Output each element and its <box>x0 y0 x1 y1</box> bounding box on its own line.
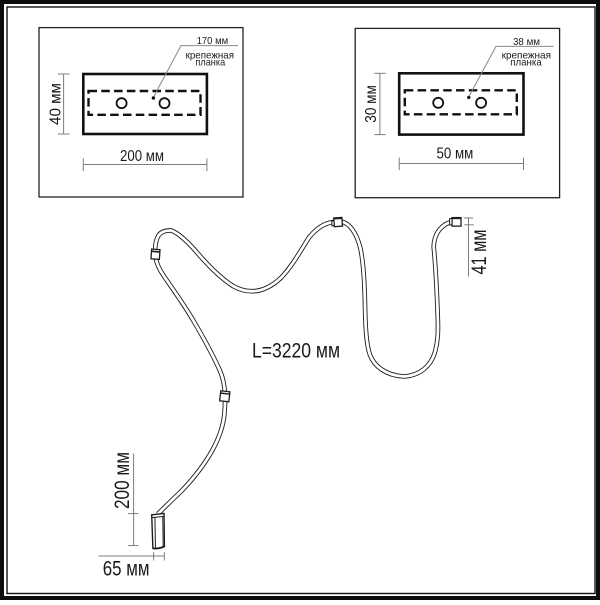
svg-text:50 мм: 50 мм <box>437 146 474 163</box>
svg-text:планка: планка <box>510 57 542 69</box>
svg-text:40 мм: 40 мм <box>47 83 64 125</box>
svg-text:30 мм: 30 мм <box>363 85 380 123</box>
svg-text:L=3220 мм: L=3220 мм <box>252 340 340 363</box>
svg-text:200 мм: 200 мм <box>111 452 134 509</box>
svg-text:41 мм: 41 мм <box>468 230 491 275</box>
svg-text:планка: планка <box>195 57 225 69</box>
svg-text:65 мм: 65 мм <box>103 558 150 581</box>
svg-text:38 мм: 38 мм <box>513 36 540 48</box>
svg-text:200 мм: 200 мм <box>120 148 164 165</box>
svg-text:170 мм: 170 мм <box>197 35 229 47</box>
